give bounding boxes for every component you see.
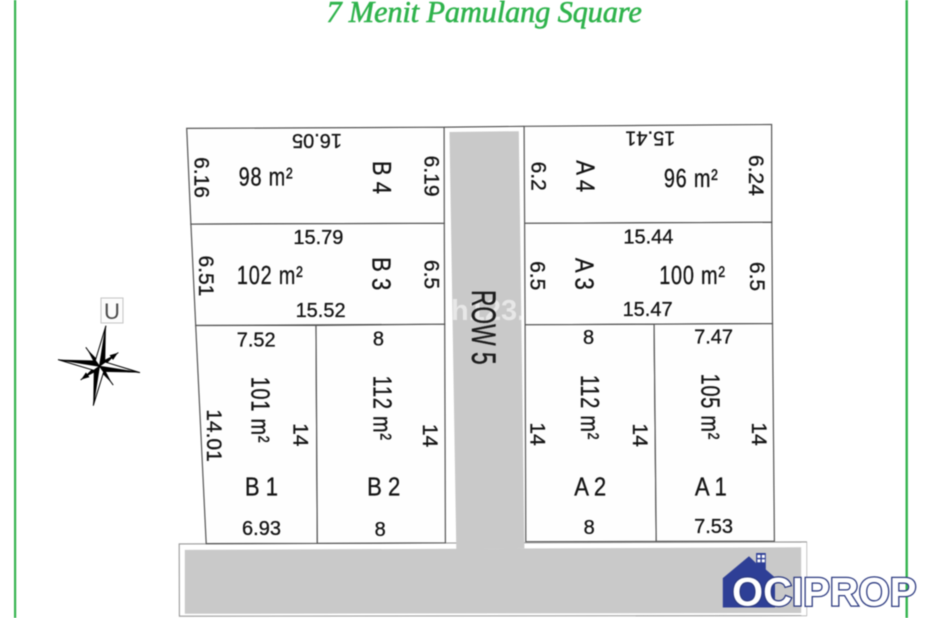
- svg-text:6.2: 6.2: [527, 162, 550, 191]
- svg-text:B 3: B 3: [366, 257, 395, 290]
- svg-text:7.52: 7.52: [237, 329, 276, 351]
- svg-text:A 1: A 1: [695, 473, 727, 502]
- svg-text:15.52: 15.52: [296, 300, 346, 322]
- svg-text:8: 8: [373, 328, 384, 350]
- svg-text:14.01: 14.01: [202, 409, 225, 462]
- svg-text:96 m²: 96 m²: [664, 164, 719, 193]
- svg-text:7.47: 7.47: [694, 327, 733, 349]
- svg-text:112 m²: 112 m²: [575, 375, 604, 440]
- svg-text:6.51: 6.51: [194, 255, 217, 296]
- svg-text:8: 8: [583, 327, 594, 349]
- svg-text:101 m²: 101 m²: [246, 377, 275, 444]
- svg-text:OCIPROP: OCIPROP: [732, 571, 916, 615]
- svg-text:105 m²: 105 m²: [696, 374, 725, 441]
- svg-text:6.5: 6.5: [525, 261, 548, 290]
- svg-text:A 3: A 3: [569, 258, 598, 290]
- svg-text:14: 14: [418, 424, 441, 448]
- svg-text:A 2: A 2: [574, 473, 606, 502]
- svg-text:6.24: 6.24: [744, 155, 767, 196]
- svg-text:15.79: 15.79: [293, 227, 343, 249]
- svg-text:15.47: 15.47: [623, 299, 673, 321]
- svg-text:B 1: B 1: [245, 473, 278, 502]
- svg-text:6.5: 6.5: [745, 262, 768, 291]
- svg-text:14: 14: [526, 422, 549, 446]
- svg-text:98 m²: 98 m²: [239, 162, 294, 191]
- svg-text:15.41: 15.41: [625, 127, 675, 149]
- svg-text:8: 8: [584, 517, 595, 539]
- svg-text:14: 14: [289, 423, 312, 447]
- svg-text:6.5: 6.5: [420, 260, 443, 289]
- svg-text:6.19: 6.19: [420, 156, 443, 197]
- svg-text:A 4: A 4: [570, 160, 599, 192]
- svg-text:U: U: [104, 299, 120, 324]
- svg-text:6.93: 6.93: [242, 518, 281, 540]
- svg-text:B 4: B 4: [367, 161, 396, 194]
- svg-text:16.05: 16.05: [292, 129, 342, 151]
- svg-text:14: 14: [747, 422, 770, 446]
- svg-text:7 Menit Pamulang Square: 7 Menit Pamulang Square: [326, 0, 641, 29]
- svg-text:112 m²: 112 m²: [368, 376, 397, 441]
- svg-text:100 m²: 100 m²: [659, 261, 726, 290]
- svg-text:ROW 5: ROW 5: [464, 290, 502, 365]
- svg-text:14: 14: [628, 423, 651, 447]
- svg-text:6.16: 6.16: [190, 157, 213, 198]
- svg-text:B 2: B 2: [367, 473, 400, 502]
- svg-text:8: 8: [375, 519, 386, 541]
- svg-text:102 m²: 102 m²: [237, 261, 304, 290]
- svg-text:15.44: 15.44: [623, 227, 673, 249]
- svg-text:7.53: 7.53: [694, 516, 733, 538]
